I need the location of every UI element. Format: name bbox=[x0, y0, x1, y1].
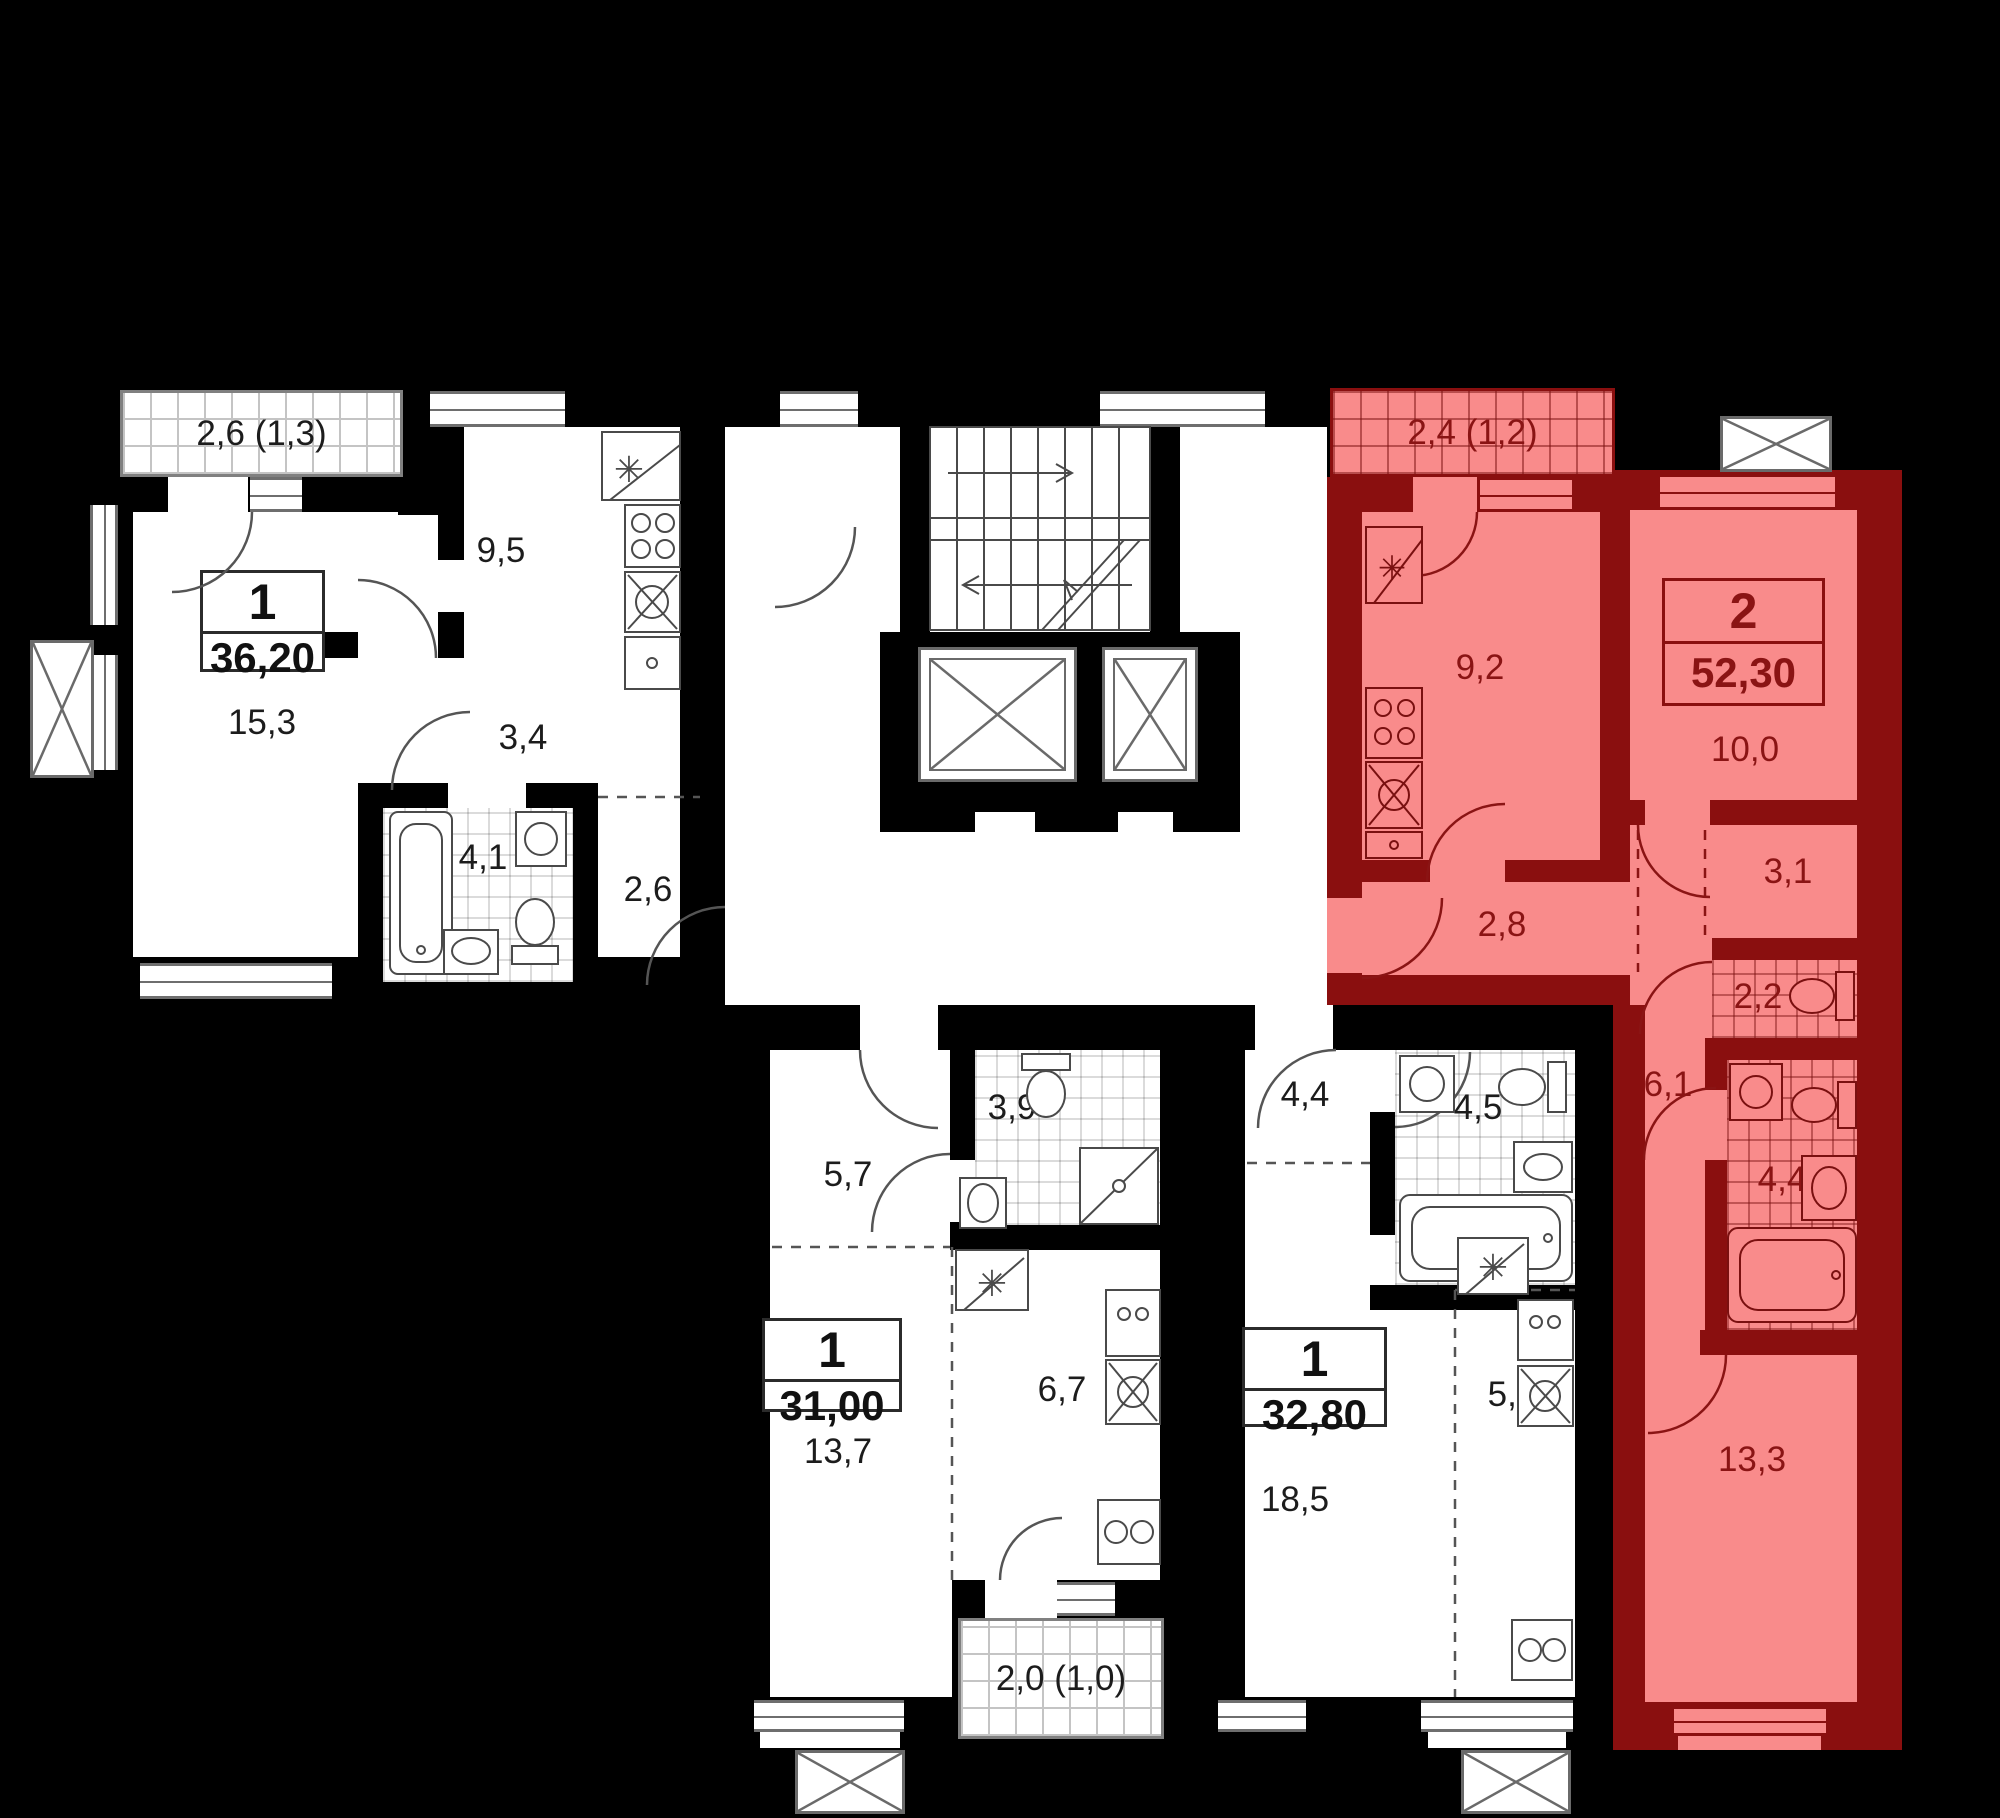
balcony: 2,0 (1,0) bbox=[958, 1618, 1164, 1739]
rooms-count: 1 bbox=[203, 573, 322, 634]
ac-unit-icon bbox=[1461, 1750, 1571, 1814]
area-label-living-room: 18,5 bbox=[1261, 1480, 1329, 1520]
window bbox=[780, 391, 858, 427]
window bbox=[1218, 1700, 1306, 1732]
window bbox=[1674, 1706, 1826, 1736]
wall-selected bbox=[1700, 1330, 1857, 1355]
elevator-shaft bbox=[918, 647, 1077, 782]
total-area: 52,30 bbox=[1665, 644, 1822, 704]
door-opening bbox=[1413, 477, 1477, 512]
door-opening bbox=[1370, 1050, 1395, 1112]
balcony: 2,6 (1,3) bbox=[120, 390, 403, 477]
area-label-kitchen: 9,2 bbox=[1456, 648, 1505, 688]
area-label-living-room: 13,7 bbox=[804, 1432, 872, 1472]
area-label-kitchen: 9,5 bbox=[477, 531, 526, 571]
wall bbox=[1370, 1285, 1575, 1310]
wall bbox=[900, 427, 930, 632]
area-label-kitchen: 5,4 bbox=[1488, 1375, 1537, 1415]
wall-selected bbox=[1613, 1005, 1645, 1750]
floor-selected bbox=[1600, 882, 1630, 975]
door-opening bbox=[1645, 800, 1710, 825]
window bbox=[140, 963, 332, 999]
elevator-shaft bbox=[1102, 647, 1198, 782]
apartment-tag[interactable]: 1 31,00 bbox=[762, 1318, 902, 1412]
area-label-wardrobe: 3,1 bbox=[1764, 852, 1813, 892]
door-opening bbox=[1255, 1005, 1333, 1050]
area-label-bathroom: 4,1 bbox=[459, 838, 508, 878]
area-label-wc: 2,2 bbox=[1734, 977, 1783, 1017]
total-area: 32,80 bbox=[1245, 1391, 1384, 1439]
total-area: 31,00 bbox=[765, 1382, 899, 1430]
area-label-kitchen: 6,7 bbox=[1038, 1370, 1087, 1410]
wall-selected bbox=[1600, 512, 1630, 860]
window bbox=[1660, 474, 1835, 510]
elevator-door bbox=[1118, 812, 1173, 832]
window bbox=[1421, 1700, 1573, 1732]
door-opening bbox=[168, 477, 248, 512]
wall-selected bbox=[1705, 1038, 1857, 1060]
rooms-count: 1 bbox=[765, 1321, 899, 1382]
window-sill bbox=[760, 1732, 900, 1748]
wall bbox=[438, 427, 464, 560]
window-sill bbox=[1428, 1732, 1566, 1748]
door-opening bbox=[1327, 898, 1362, 973]
window bbox=[1057, 1582, 1115, 1616]
rooms-count: 1 bbox=[1245, 1330, 1384, 1391]
area-label-hall: 4,4 bbox=[1281, 1075, 1330, 1115]
floor-plan: 2,6 (1,3) 1 36,20 15,3 9,5 3,4 4,1 2,6 bbox=[0, 0, 2000, 1818]
door-opening bbox=[448, 783, 526, 808]
bathroom-floor bbox=[975, 1050, 1160, 1225]
elevator-door bbox=[975, 812, 1035, 832]
ac-unit-icon bbox=[795, 1750, 905, 1814]
wall bbox=[438, 612, 464, 658]
window bbox=[1480, 477, 1572, 512]
balcony: 2,4 (1,2) bbox=[1330, 388, 1615, 477]
area-label-hallway: 6,1 bbox=[1644, 1065, 1693, 1105]
door-opening bbox=[985, 1580, 1057, 1618]
window bbox=[754, 1700, 904, 1732]
window bbox=[430, 391, 565, 427]
apartment-tag[interactable]: 1 32,80 bbox=[1242, 1327, 1387, 1427]
area-label-hall: 2,6 bbox=[624, 870, 673, 910]
area-label-hall: 5,7 bbox=[824, 1155, 873, 1195]
area-label-bathroom: 4,5 bbox=[1454, 1088, 1503, 1128]
area-label-living-room: 10,0 bbox=[1711, 730, 1779, 770]
apartment-tag-selected[interactable]: 2 52,30 bbox=[1662, 578, 1825, 706]
area-label-bedroom: 13,3 bbox=[1718, 1440, 1786, 1480]
bathroom-floor bbox=[383, 808, 573, 982]
wall bbox=[950, 1225, 1160, 1250]
door-opening bbox=[950, 1160, 975, 1222]
area-label-hall: 2,8 bbox=[1478, 905, 1527, 945]
total-area: 36,20 bbox=[203, 634, 322, 682]
window bbox=[250, 477, 302, 512]
area-label-bathroom: 4,4 bbox=[1758, 1160, 1807, 1200]
window-sill bbox=[1678, 1736, 1821, 1750]
window bbox=[1100, 391, 1265, 427]
wall bbox=[1150, 427, 1180, 632]
door-opening bbox=[860, 1005, 938, 1050]
door-opening bbox=[1705, 1090, 1727, 1160]
bathroom-floor bbox=[1395, 1050, 1575, 1285]
area-label-living-room: 15,3 bbox=[228, 703, 296, 743]
ac-unit-icon bbox=[30, 640, 94, 778]
balcony-area-label: 2,6 (1,3) bbox=[196, 414, 326, 454]
area-label-corridor: 3,4 bbox=[499, 718, 548, 758]
balcony-area-label: 2,4 (1,2) bbox=[1407, 413, 1537, 453]
apartment-tag[interactable]: 1 36,20 bbox=[200, 570, 325, 672]
rooms-count: 2 bbox=[1665, 581, 1822, 644]
window bbox=[90, 505, 118, 625]
balcony-area-label: 2,0 (1,0) bbox=[996, 1659, 1126, 1699]
ac-unit-icon bbox=[1720, 416, 1832, 472]
area-label-bathroom: 3,9 bbox=[988, 1088, 1037, 1128]
window bbox=[90, 655, 118, 770]
wall-selected bbox=[1712, 938, 1857, 960]
door-opening bbox=[1430, 860, 1505, 882]
